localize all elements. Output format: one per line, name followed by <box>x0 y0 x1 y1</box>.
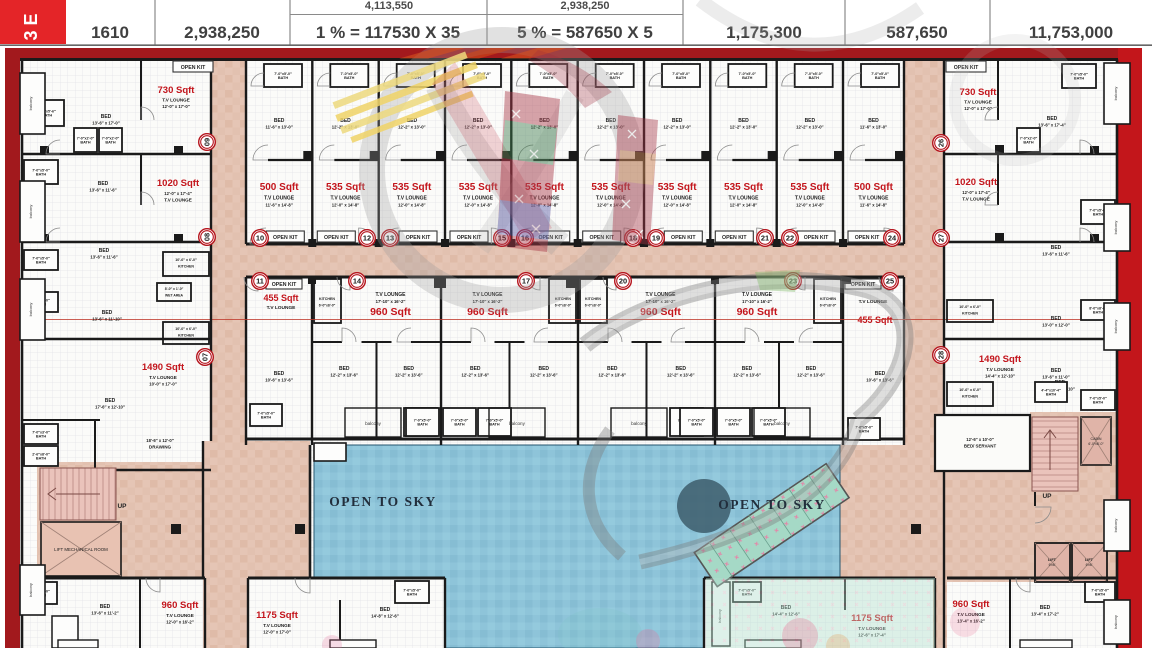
svg-text:CABIN: CABIN <box>1091 437 1102 441</box>
svg-text:11,753,000: 11,753,000 <box>1029 23 1113 42</box>
svg-text:730 Sqft: 730 Sqft <box>960 87 998 98</box>
svg-text:12'-2″ x 13'-6″: 12'-2″ x 13'-6″ <box>667 373 694 378</box>
svg-text:12'-0″ x 14'-8″: 12'-0″ x 14'-8″ <box>332 203 359 208</box>
svg-text:BATH: BATH <box>1046 393 1057 397</box>
svg-text:12'-2″ x 13'-0″: 12'-2″ x 13'-0″ <box>398 125 425 130</box>
svg-text:BED: BED <box>99 248 110 254</box>
svg-text:22: 22 <box>786 234 794 243</box>
svg-text:12'-2″ x 13'-0″: 12'-2″ x 13'-0″ <box>663 125 690 130</box>
svg-text:12'-2″ x 13'-6″: 12'-2″ x 13'-6″ <box>530 373 557 378</box>
svg-text:14'-8″ x 12'-6″: 14'-8″ x 12'-6″ <box>371 614 398 619</box>
svg-text:12'-0″ x 17'-0″: 12'-0″ x 17'-0″ <box>162 104 189 109</box>
svg-text:17'-6″ x 12'-10″: 17'-6″ x 12'-10″ <box>95 405 125 410</box>
svg-text:13'-4″ x 17'-2″: 13'-4″ x 17'-2″ <box>1031 612 1058 617</box>
svg-text:12'-2″ x 13'-6″: 12'-2″ x 13'-6″ <box>462 373 489 378</box>
svg-text:KITCHEN: KITCHEN <box>820 297 836 301</box>
svg-text:BATH: BATH <box>105 141 116 145</box>
svg-text:BED: BED <box>607 366 618 372</box>
svg-text:13'-6″ x 11'-0″: 13'-6″ x 11'-0″ <box>1042 375 1069 380</box>
svg-text:26: 26 <box>937 139 946 147</box>
svg-text:OPEN KIT: OPEN KIT <box>406 235 431 241</box>
svg-text:balcony: balcony <box>1113 320 1118 334</box>
svg-text:12'-0″ x 14'-8″: 12'-0″ x 14'-8″ <box>730 203 757 208</box>
svg-text:6'x6': 6'x6' <box>1086 563 1093 567</box>
svg-text:11'-6″ x 13'-0″: 11'-6″ x 13'-0″ <box>266 125 293 130</box>
svg-text:12'-2″ x 13'-0″: 12'-2″ x 13'-0″ <box>730 125 757 130</box>
svg-text:11'-6″ x 14'-8″: 11'-6″ x 14'-8″ <box>266 203 293 208</box>
svg-text:1490 Sqft: 1490 Sqft <box>979 354 1022 365</box>
svg-text:11'-6″ x 13'-0″: 11'-6″ x 13'-0″ <box>860 125 887 130</box>
svg-text:BED: BED <box>1051 368 1062 374</box>
svg-text:1 % = 117530 X 35: 1 % = 117530 X 35 <box>316 23 460 42</box>
svg-text:24: 24 <box>888 234 897 243</box>
svg-text:455 Sqft: 455 Sqft <box>263 293 298 303</box>
svg-text:535 Sqft: 535 Sqft <box>658 182 698 193</box>
svg-text:08: 08 <box>203 233 212 241</box>
svg-text:17'-10″ x 16'-2″: 17'-10″ x 16'-2″ <box>742 299 772 304</box>
svg-text:balcony: balcony <box>28 97 33 111</box>
svg-text:500 Sqft: 500 Sqft <box>260 182 300 193</box>
svg-text:KITCHEN: KITCHEN <box>962 312 978 316</box>
svg-text:T.V LOUNGE: T.V LOUNGE <box>858 196 889 202</box>
svg-text:T.V LOUNGE: T.V LOUNGE <box>397 196 428 202</box>
svg-text:OPEN KIT: OPEN KIT <box>272 282 297 288</box>
svg-text:T.V LOUNGE: T.V LOUNGE <box>375 292 406 298</box>
svg-text:T.V LOUNGE: T.V LOUNGE <box>463 196 494 202</box>
svg-text:13'-6″ x 11'-10″: 13'-6″ x 11'-10″ <box>92 317 122 322</box>
svg-text:T.V LOUNGE: T.V LOUNGE <box>728 196 759 202</box>
svg-text:BED: BED <box>672 118 683 124</box>
svg-text:18'-6″ x 12'-0″: 18'-6″ x 12'-0″ <box>146 438 173 443</box>
svg-text:balcony: balcony <box>631 421 648 426</box>
svg-text:10'-0″ x 6'-0″: 10'-0″ x 6'-0″ <box>959 305 981 309</box>
svg-text:BATH: BATH <box>36 457 47 461</box>
svg-text:19: 19 <box>652 234 660 243</box>
svg-text:LIFT: LIFT <box>1048 558 1057 562</box>
svg-text:balcony: balcony <box>28 205 33 219</box>
svg-text:BED/ SERVANT: BED/ SERVANT <box>964 444 997 449</box>
svg-text:UP: UP <box>1042 493 1052 500</box>
svg-text:BATH: BATH <box>742 76 753 80</box>
svg-text:BATH: BATH <box>407 593 418 597</box>
svg-text:balcony: balcony <box>365 421 382 426</box>
svg-text:T.V LOUNGE: T.V LOUNGE <box>662 196 693 202</box>
svg-text:BATH: BATH <box>728 423 739 427</box>
svg-text:BED: BED <box>738 118 749 124</box>
svg-text:14'-4″ x 12'-10″: 14'-4″ x 12'-10″ <box>985 374 1015 379</box>
svg-text:balcony: balcony <box>28 583 33 597</box>
svg-text:12: 12 <box>363 234 371 243</box>
svg-text:OPEN KIT: OPEN KIT <box>671 235 696 241</box>
svg-text:T.V LOUNGE: T.V LOUNGE <box>263 623 291 628</box>
svg-text:BATH: BATH <box>543 76 554 80</box>
svg-text:BED: BED <box>806 366 817 372</box>
svg-text:12'-0″ x 14'-8″: 12'-0″ x 14'-8″ <box>398 203 425 208</box>
svg-text:13'-6″ x 11'-6″: 13'-6″ x 11'-6″ <box>89 188 116 193</box>
svg-text:KITCHEN: KITCHEN <box>178 334 194 338</box>
svg-text:OPEN TO SKY: OPEN TO SKY <box>329 494 437 509</box>
svg-text:BED: BED <box>403 366 414 372</box>
svg-text:13'-6″ x 11'-2″: 13'-6″ x 11'-2″ <box>91 611 118 616</box>
svg-text:T.V LOUNGE: T.V LOUNGE <box>742 292 773 298</box>
svg-text:BATH: BATH <box>763 423 774 427</box>
svg-text:BATH: BATH <box>454 423 465 427</box>
svg-text:1490 Sqft: 1490 Sqft <box>142 362 185 373</box>
svg-text:10'-6″ x 6'-0″: 10'-6″ x 6'-0″ <box>959 388 981 392</box>
svg-text:535 Sqft: 535 Sqft <box>724 182 764 193</box>
svg-text:12'-0″ x 14'-8″: 12'-0″ x 14'-8″ <box>464 203 491 208</box>
svg-text:6'-0″x8'-0″: 6'-0″x8'-0″ <box>319 304 336 308</box>
svg-text:BATH: BATH <box>875 76 886 80</box>
svg-text:OPEN KIT: OPEN KIT <box>855 235 880 241</box>
svg-text:DRAWING: DRAWING <box>149 445 172 450</box>
svg-text:OPEN KIT: OPEN KIT <box>181 65 206 71</box>
svg-text:BED: BED <box>1051 245 1062 251</box>
svg-text:OPEN TO SKY: OPEN TO SKY <box>718 497 826 512</box>
svg-text:balcony: balcony <box>1113 87 1118 101</box>
svg-text:BED: BED <box>742 366 753 372</box>
svg-text:BATH: BATH <box>278 76 289 80</box>
svg-text:balcony: balcony <box>1113 221 1118 235</box>
svg-text:4,113,550: 4,113,550 <box>365 0 413 12</box>
svg-text:BATH: BATH <box>1093 311 1104 315</box>
svg-text:BATH: BATH <box>261 416 272 420</box>
svg-text:KITCHEN: KITCHEN <box>319 297 335 301</box>
svg-text:T.V LOUNGE: T.V LOUNGE <box>964 100 992 105</box>
svg-text:balcony: balcony <box>1113 615 1118 629</box>
svg-text:12'-2″ x 13'-0″: 12'-2″ x 13'-0″ <box>796 125 823 130</box>
svg-text:BED: BED <box>675 366 686 372</box>
svg-text:BED: BED <box>100 604 111 610</box>
svg-text:6'-0″x8'-0″: 6'-0″x8'-0″ <box>555 304 572 308</box>
svg-text:11: 11 <box>256 277 264 286</box>
svg-text:T.V LOUNGE: T.V LOUNGE <box>264 196 295 202</box>
svg-text:455 Sqft: 455 Sqft <box>857 315 892 325</box>
svg-text:13'-6″ x 17'-0″: 13'-6″ x 17'-0″ <box>92 121 119 126</box>
svg-text:21: 21 <box>761 234 769 243</box>
svg-text:BED: BED <box>105 398 116 404</box>
svg-text:T.V LOUNGE: T.V LOUNGE <box>164 198 192 203</box>
svg-text:12'-0″ x 14'-8″: 12'-0″ x 14'-8″ <box>796 203 823 208</box>
svg-text:balcony: balcony <box>509 421 526 426</box>
svg-text:BATH: BATH <box>809 76 820 80</box>
svg-text:960 Sqft: 960 Sqft <box>370 306 411 318</box>
svg-text:BED: BED <box>470 366 481 372</box>
svg-text:2,938,250: 2,938,250 <box>561 0 610 12</box>
svg-text:960 Sqft: 960 Sqft <box>162 600 200 611</box>
svg-text:10'-0″ x 17'-0″: 10'-0″ x 17'-0″ <box>149 382 176 387</box>
svg-text:13'-0″ x 12'-0″: 13'-0″ x 12'-0″ <box>1042 323 1069 328</box>
svg-text:12'-2″ x 13'-6″: 12'-2″ x 13'-6″ <box>395 373 422 378</box>
svg-text:10'-0″ x 6'-0″: 10'-0″ x 6'-0″ <box>175 327 197 331</box>
svg-text:14: 14 <box>353 277 362 286</box>
svg-text:T.V LOUNGE: T.V LOUNGE <box>162 98 190 103</box>
svg-text:BED: BED <box>805 118 816 124</box>
svg-text:BATH: BATH <box>80 141 91 145</box>
svg-text:BATH: BATH <box>36 173 47 177</box>
svg-text:LIFT: LIFT <box>1085 558 1094 562</box>
svg-text:12'-2″ x 13'-6″: 12'-2″ x 13'-6″ <box>733 373 760 378</box>
svg-text:BATH: BATH <box>1093 401 1104 405</box>
svg-text:12'-0″ x 17'-0″: 12'-0″ x 17'-0″ <box>964 106 991 111</box>
svg-text:BATH: BATH <box>417 423 428 427</box>
svg-text:730 Sqft: 730 Sqft <box>158 85 196 96</box>
svg-text:13'-6″ x 11'-6″: 13'-6″ x 11'-6″ <box>90 255 117 260</box>
svg-text:20: 20 <box>619 277 627 286</box>
svg-text:535 Sqft: 535 Sqft <box>392 182 432 193</box>
svg-text:1020 Sqft: 1020 Sqft <box>955 177 998 188</box>
svg-text:960 Sqft: 960 Sqft <box>953 599 991 610</box>
svg-text:BATH: BATH <box>676 76 687 80</box>
svg-text:10'-6″ x 13'-6″: 10'-6″ x 13'-6″ <box>265 378 292 383</box>
svg-text:12'-6″ x 10'-0″: 12'-6″ x 10'-0″ <box>966 437 993 442</box>
svg-text:13'-6″ x 17'-4″: 13'-6″ x 17'-4″ <box>1038 123 1065 128</box>
svg-text:BATH: BATH <box>691 423 702 427</box>
svg-text:28: 28 <box>937 351 946 359</box>
svg-text:07: 07 <box>201 353 210 361</box>
svg-text:500 Sqft: 500 Sqft <box>854 182 894 193</box>
svg-text:BATH: BATH <box>1023 141 1034 145</box>
svg-text:13'-6″ x 11'-6″: 13'-6″ x 11'-6″ <box>1042 252 1069 257</box>
svg-text:BED: BED <box>1047 116 1058 122</box>
svg-text:BED: BED <box>875 371 886 377</box>
svg-text:OPEN KIT: OPEN KIT <box>324 235 349 241</box>
svg-text:BATH: BATH <box>36 261 47 265</box>
svg-text:BED: BED <box>274 118 285 124</box>
svg-text:BED: BED <box>1051 316 1062 322</box>
svg-text:BATH: BATH <box>1095 593 1106 597</box>
svg-text:1020 Sqft: 1020 Sqft <box>157 178 200 189</box>
svg-text:535 Sqft: 535 Sqft <box>790 182 830 193</box>
svg-text:OPEN KIT: OPEN KIT <box>273 235 298 241</box>
svg-text:UP: UP <box>117 503 127 510</box>
svg-text:6'-0″x8'-0″: 6'-0″x8'-0″ <box>820 304 837 308</box>
svg-text:6'-0″x8'-0″: 6'-0″x8'-0″ <box>585 304 602 308</box>
svg-text:12'-0″ x 17'-4″: 12'-0″ x 17'-4″ <box>962 190 989 195</box>
svg-text:BED: BED <box>98 181 109 187</box>
svg-text:OPEN KIT: OPEN KIT <box>722 235 747 241</box>
svg-text:8'-0″ x 1'-0″: 8'-0″ x 1'-0″ <box>165 287 184 291</box>
svg-text:12'-0″ x 17'-0″: 12'-0″ x 17'-0″ <box>263 630 290 635</box>
svg-text:BATH: BATH <box>489 423 500 427</box>
svg-text:12'-0″ x 16'-2″: 12'-0″ x 16'-2″ <box>166 620 193 625</box>
svg-text:BED: BED <box>339 366 350 372</box>
svg-text:KITCHEN: KITCHEN <box>585 297 601 301</box>
svg-text:BED: BED <box>380 607 391 613</box>
svg-text:12'-2″ x 13'-6″: 12'-2″ x 13'-6″ <box>797 373 824 378</box>
svg-text:balcony: balcony <box>1113 519 1118 533</box>
svg-text:BATH: BATH <box>1093 213 1104 217</box>
svg-text:T.V LOUNGE: T.V LOUNGE <box>330 196 361 202</box>
svg-text:6'x6': 6'x6' <box>1049 563 1056 567</box>
svg-text:17'-10″ x 16'-2″: 17'-10″ x 16'-2″ <box>376 299 406 304</box>
svg-text:12'-0″ x 17'-4″: 12'-0″ x 17'-4″ <box>164 191 191 196</box>
svg-text:BED: BED <box>102 310 113 316</box>
svg-text:6'-0″x8'-0″: 6'-0″x8'-0″ <box>1088 442 1104 446</box>
svg-text:T.V LOUNGE: T.V LOUNGE <box>986 367 1014 372</box>
svg-text:10'-6″ x 6'-0″: 10'-6″ x 6'-0″ <box>175 258 197 262</box>
svg-text:OPEN KIT: OPEN KIT <box>804 235 829 241</box>
svg-text:12'-2″ x 13'-6″: 12'-2″ x 13'-6″ <box>331 373 358 378</box>
svg-text:BED: BED <box>868 118 879 124</box>
svg-text:balcony: balcony <box>774 421 791 426</box>
svg-text:09: 09 <box>203 138 212 146</box>
svg-text:KITCHEN: KITCHEN <box>178 265 194 269</box>
svg-text:25: 25 <box>886 277 894 286</box>
svg-text:10: 10 <box>256 234 264 243</box>
svg-text:balcony: balcony <box>28 303 33 317</box>
svg-text:WET AREA: WET AREA <box>165 294 184 298</box>
svg-text:960 Sqft: 960 Sqft <box>737 306 778 318</box>
svg-text:T.V LOUNGE: T.V LOUNGE <box>149 375 177 380</box>
svg-text:12'-2″ x 13'-6″: 12'-2″ x 13'-6″ <box>599 373 626 378</box>
svg-text:KITCHEN: KITCHEN <box>962 395 978 399</box>
svg-text:1610: 1610 <box>91 23 129 42</box>
svg-text:BED: BED <box>274 371 285 377</box>
svg-text:2,938,250: 2,938,250 <box>184 23 260 42</box>
svg-text:T.V LOUNGE: T.V LOUNGE <box>795 196 826 202</box>
svg-text:3 E: 3 E <box>21 13 41 40</box>
svg-text:BED: BED <box>1040 605 1051 611</box>
svg-text:BED: BED <box>101 114 112 120</box>
svg-text:BATH: BATH <box>344 76 355 80</box>
svg-text:LIFT MECHANICAL ROOM: LIFT MECHANICAL ROOM <box>54 547 108 552</box>
svg-text:27: 27 <box>937 234 946 242</box>
svg-text:BATH: BATH <box>36 435 47 439</box>
svg-text:11'-6″ x 14'-8″: 11'-6″ x 14'-8″ <box>860 203 887 208</box>
svg-text:1175 Sqft: 1175 Sqft <box>256 610 299 621</box>
svg-text:12'-0″ x 14'-8″: 12'-0″ x 14'-8″ <box>663 203 690 208</box>
svg-text:BED: BED <box>538 366 549 372</box>
svg-text:T.V LOUNGE: T.V LOUNGE <box>267 305 297 311</box>
svg-text:T.V LOUNGE: T.V LOUNGE <box>166 613 194 618</box>
